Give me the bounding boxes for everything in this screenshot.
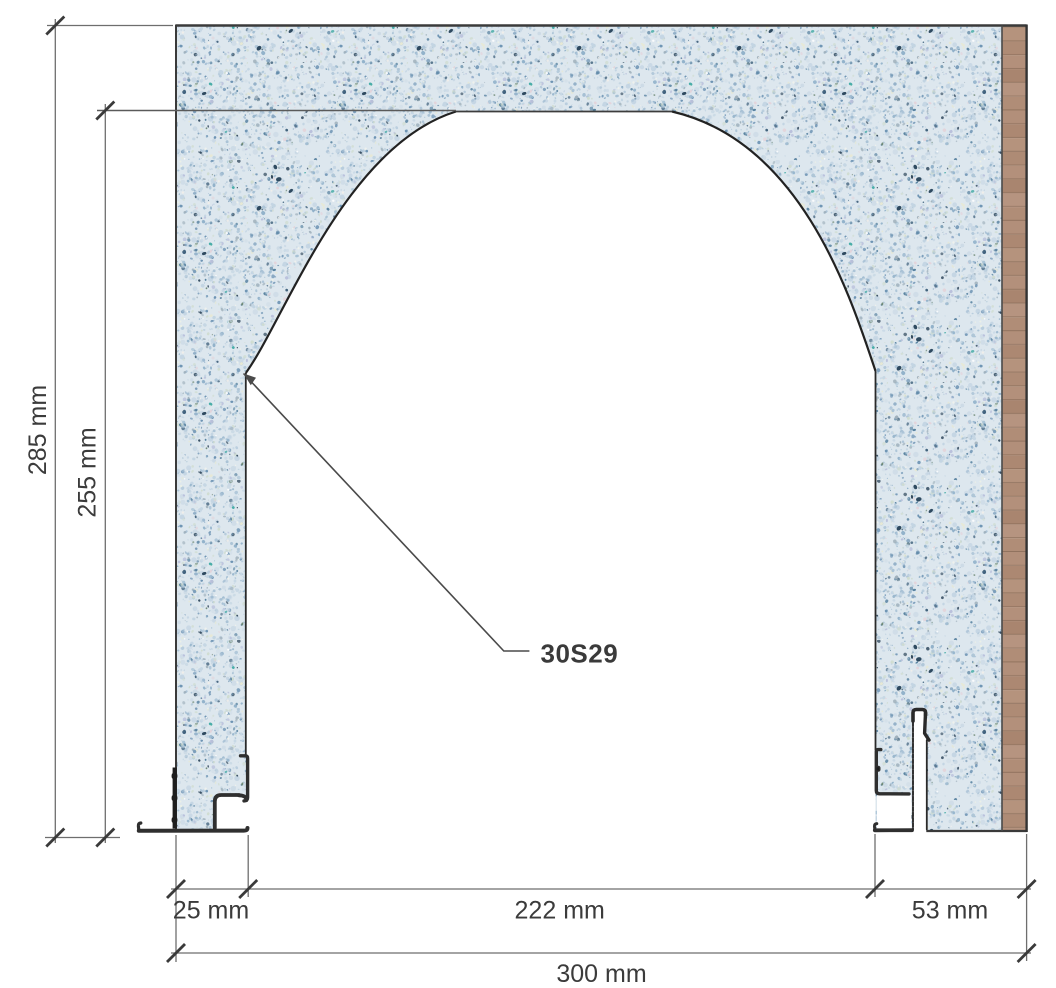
svg-text:53 mm: 53 mm (912, 897, 988, 925)
svg-text:30S29: 30S29 (541, 639, 619, 669)
svg-text:222 mm: 222 mm (515, 897, 605, 925)
svg-text:300 mm: 300 mm (556, 960, 646, 988)
svg-text:25 mm: 25 mm (173, 897, 249, 925)
svg-text:285 mm: 285 mm (24, 385, 52, 475)
svg-text:255 mm: 255 mm (73, 427, 101, 517)
